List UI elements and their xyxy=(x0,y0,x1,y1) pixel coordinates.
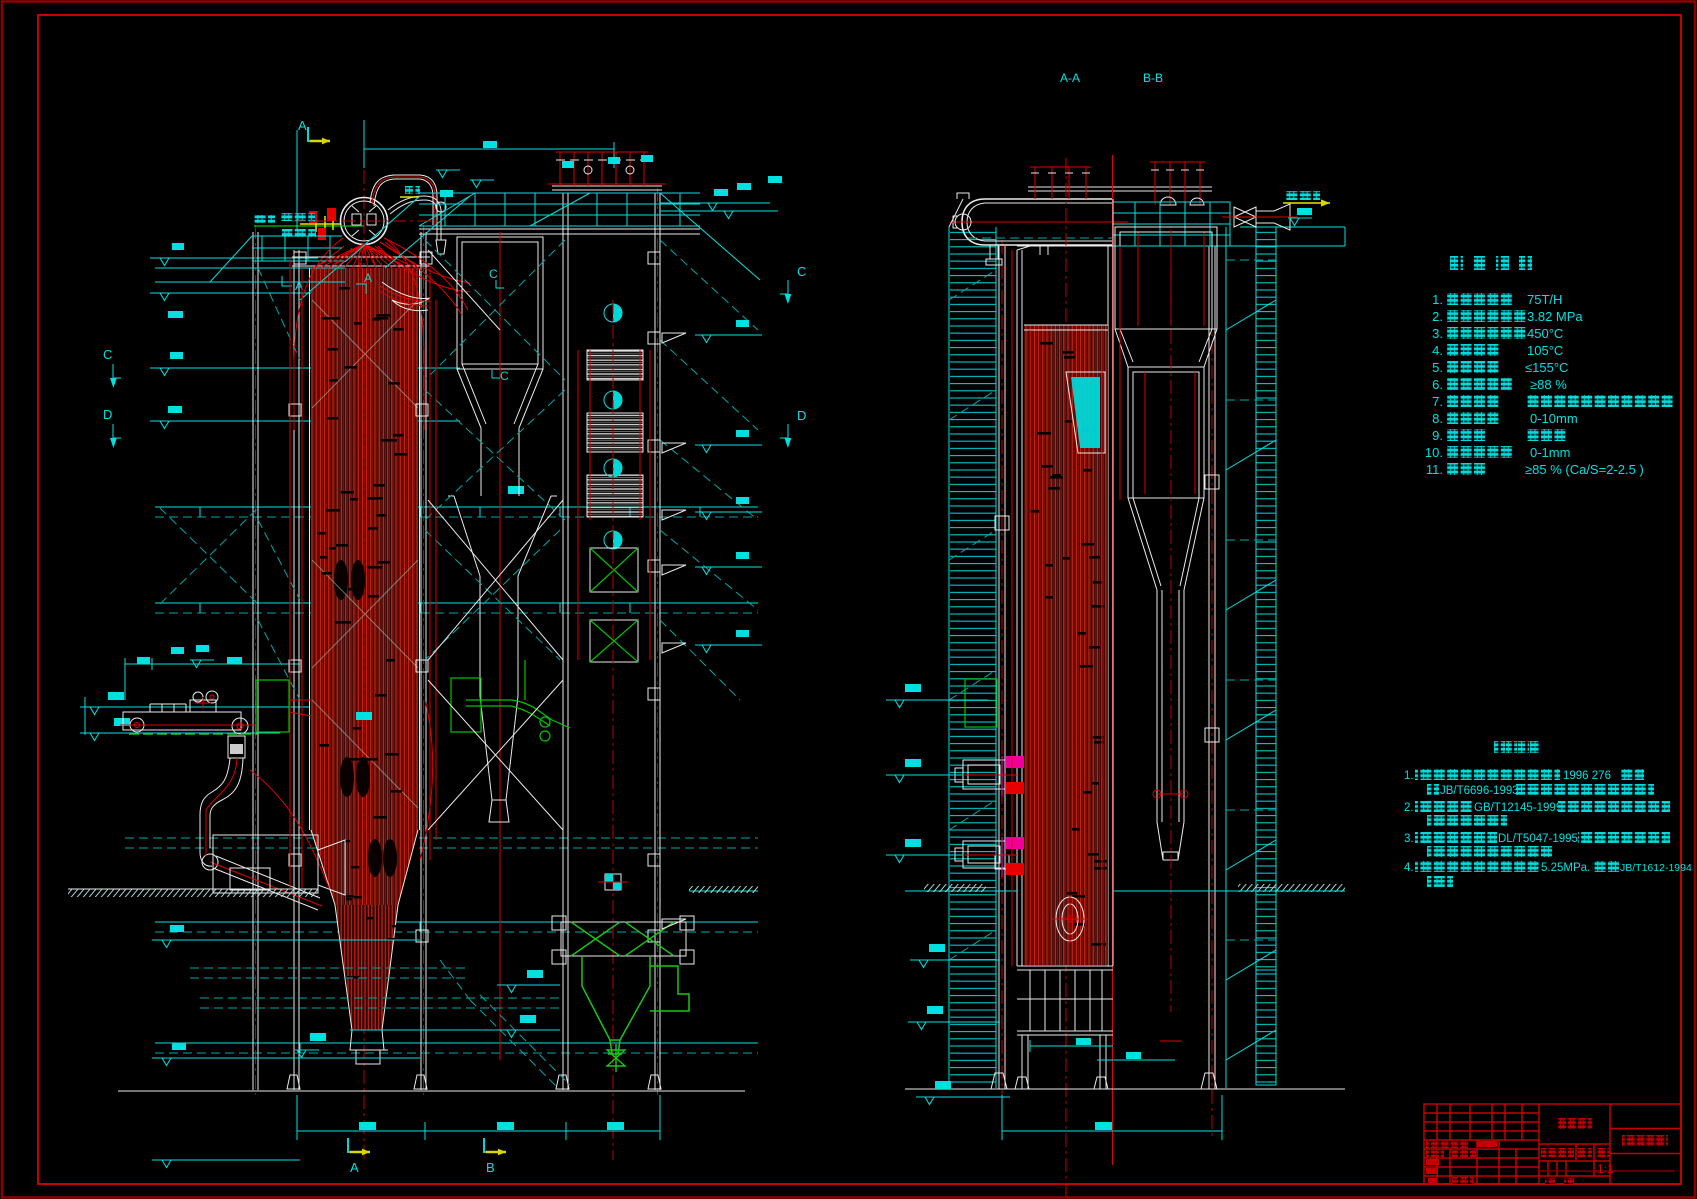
svg-text:5.25MPa.: 5.25MPa. xyxy=(1541,862,1590,874)
svg-text:C: C xyxy=(103,347,112,362)
svg-text:2.: 2. xyxy=(1432,309,1443,324)
svg-text:450°C: 450°C xyxy=(1527,326,1563,341)
svg-text:3.: 3. xyxy=(1404,833,1414,845)
svg-text:≥88 %: ≥88 % xyxy=(1530,377,1567,392)
svg-text:3.82 MPa: 3.82 MPa xyxy=(1527,309,1583,324)
svg-text:JB/T1612-1994: JB/T1612-1994 xyxy=(1620,862,1692,874)
svg-text:≤155°C: ≤155°C xyxy=(1525,360,1568,375)
svg-text:6.: 6. xyxy=(1432,377,1443,392)
svg-text:11.: 11. xyxy=(1426,462,1443,477)
svg-text:A: A xyxy=(350,1160,359,1175)
svg-text:1.: 1. xyxy=(1404,770,1414,782)
svg-text:D: D xyxy=(103,407,112,422)
svg-text:C: C xyxy=(500,369,509,383)
svg-text:A: A xyxy=(364,271,372,285)
svg-text:4.: 4. xyxy=(1404,862,1414,874)
svg-text:DL/T5047-1995: DL/T5047-1995 xyxy=(1498,833,1578,845)
svg-text:1.: 1. xyxy=(1432,292,1443,307)
svg-text:10.: 10. xyxy=(1425,445,1443,460)
svg-text:1996 276: 1996 276 xyxy=(1563,770,1611,782)
svg-text:A: A xyxy=(298,118,307,133)
svg-text:105°C: 105°C xyxy=(1527,343,1563,358)
svg-text:JB/T6696-1993: JB/T6696-1993 xyxy=(1440,785,1519,797)
svg-text:7.: 7. xyxy=(1432,394,1443,409)
svg-text:C: C xyxy=(489,267,498,281)
svg-text:2.: 2. xyxy=(1404,802,1414,814)
svg-text:A-A: A-A xyxy=(1060,71,1080,85)
svg-text:8.: 8. xyxy=(1432,411,1443,426)
svg-text:B-B: B-B xyxy=(1143,71,1163,85)
svg-text:1:1: 1:1 xyxy=(1597,1162,1614,1176)
svg-text:0-1mm: 0-1mm xyxy=(1530,445,1570,460)
svg-text:≥85 % (Ca/S=2-2.5 ): ≥85 % (Ca/S=2-2.5 ) xyxy=(1525,462,1644,477)
svg-text:3.: 3. xyxy=(1432,326,1443,341)
svg-text:75T/H: 75T/H xyxy=(1527,292,1562,307)
svg-text:GB/T12145-1999: GB/T12145-1999 xyxy=(1474,802,1562,814)
svg-text:D: D xyxy=(797,408,806,423)
svg-text:0-10mm: 0-10mm xyxy=(1530,411,1578,426)
svg-text:B: B xyxy=(486,1160,495,1175)
svg-text:4.: 4. xyxy=(1432,343,1443,358)
svg-text:C: C xyxy=(797,264,806,279)
svg-text:5.: 5. xyxy=(1432,360,1443,375)
svg-text:9.: 9. xyxy=(1432,428,1443,443)
